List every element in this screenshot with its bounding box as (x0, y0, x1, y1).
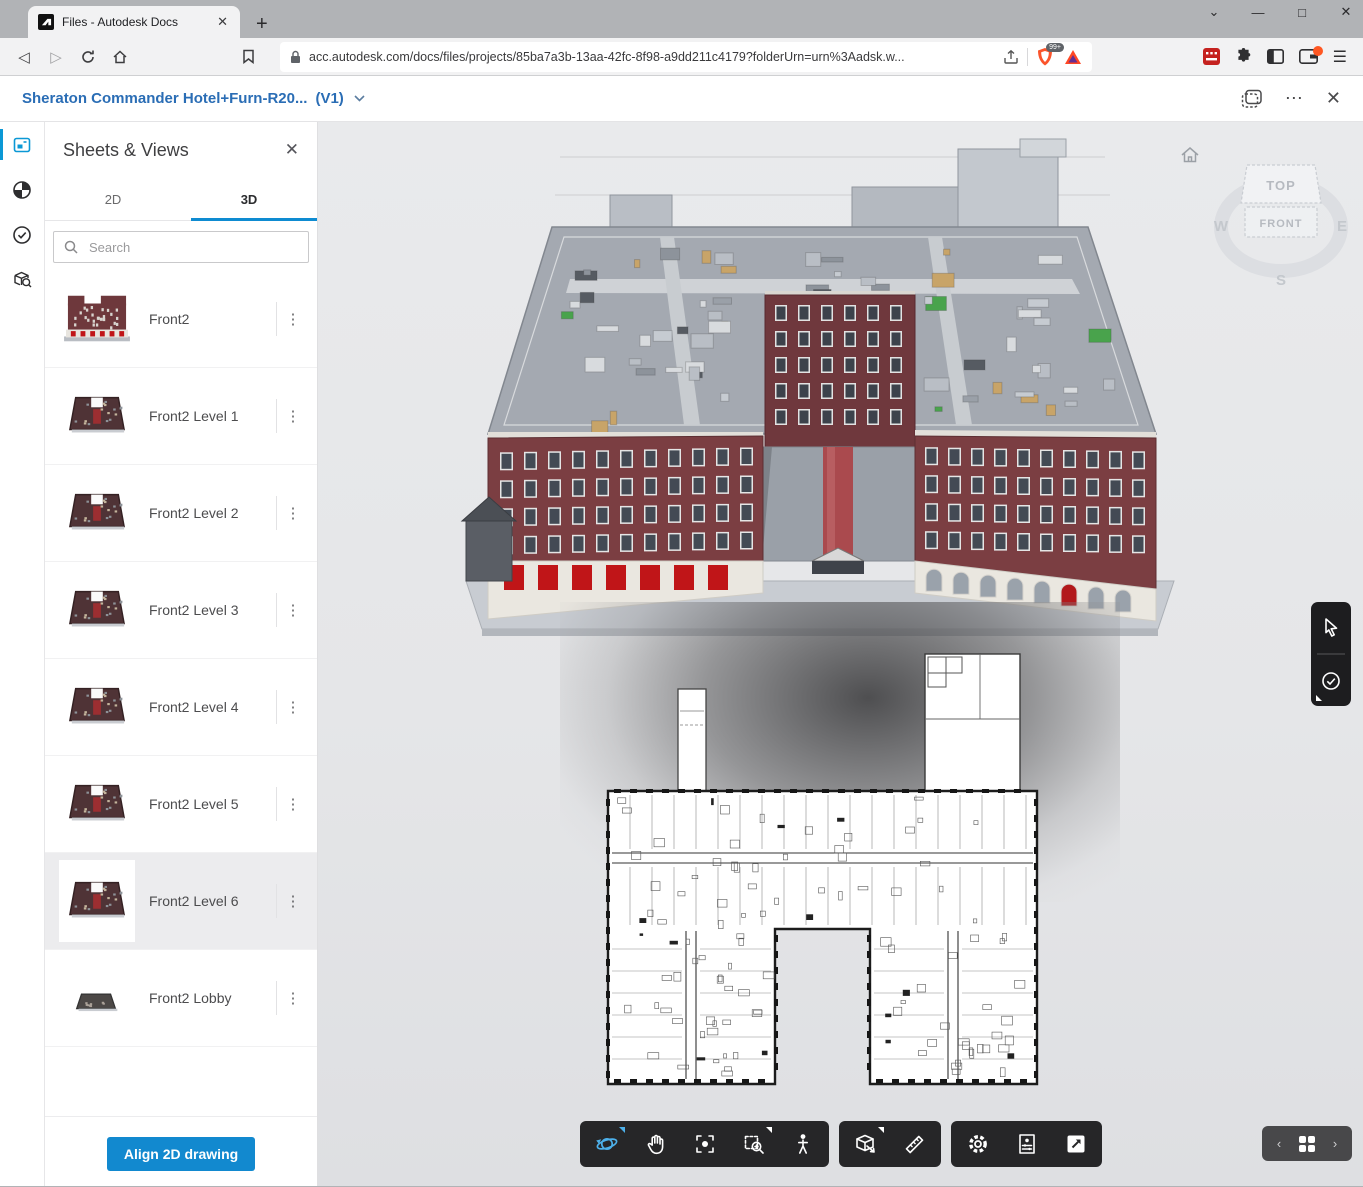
align-2d-drawing-button[interactable]: Align 2D drawing (107, 1137, 255, 1171)
window-controls: ⌄ — □ ✕ (1205, 4, 1355, 20)
panel-tabs: 2D 3D (45, 178, 317, 221)
minimize-icon[interactable]: — (1249, 5, 1267, 20)
menu-hamburger-icon[interactable]: ☰ (1333, 47, 1347, 67)
item-kebab-menu-icon[interactable]: ⋮ (277, 407, 309, 425)
rail-model-search-button[interactable] (0, 257, 44, 302)
measure-tool[interactable] (890, 1121, 939, 1167)
viewcube-south-label[interactable]: S (1276, 272, 1286, 289)
browser-tabstrip: Files - Autodesk Docs ✕ + ⌄ — □ ✕ (0, 0, 1363, 38)
pan-tool[interactable] (631, 1121, 680, 1167)
document-views-tool[interactable] (1002, 1121, 1051, 1167)
sheet-item-label: Front2 Level 2 (149, 505, 276, 521)
floor-plan-2d[interactable] (600, 649, 1040, 1089)
fit-to-view-tool[interactable] (680, 1121, 729, 1167)
shields-badge: 99+ (1046, 43, 1064, 52)
share-icon[interactable] (1003, 49, 1019, 65)
document-views-icon (1016, 1132, 1038, 1156)
extensions-puzzle-icon[interactable] (1235, 48, 1252, 65)
browser-tab[interactable]: Files - Autodesk Docs ✕ (28, 6, 240, 38)
toolbar-group (580, 1121, 829, 1167)
selection-toolbar (1311, 602, 1351, 706)
orbit-icon (594, 1131, 620, 1157)
compare-versions-icon[interactable] (1241, 89, 1263, 109)
bookmark-icon[interactable] (234, 43, 262, 71)
orbit-tool[interactable] (582, 1121, 631, 1167)
version-chevron-down-icon[interactable] (354, 95, 365, 102)
window-close-icon[interactable]: ✕ (1337, 4, 1355, 20)
viewer-toolbar (580, 1121, 1102, 1167)
extension-icons: ☰ (1203, 47, 1353, 67)
autodesk-favicon-icon (38, 14, 54, 30)
issues-check-tool[interactable] (1311, 655, 1351, 706)
item-kebab-menu-icon[interactable]: ⋮ (277, 795, 309, 813)
search-icon (64, 240, 78, 254)
plate-small-thumbnail (59, 957, 135, 1039)
item-kebab-menu-icon[interactable]: ⋮ (277, 698, 309, 716)
settings-tool[interactable] (953, 1121, 1002, 1167)
left-rail (0, 122, 45, 1186)
views-pager: ‹ › (1262, 1126, 1352, 1161)
sheet-list-item[interactable]: Front2 Level 4⋮ (45, 659, 317, 756)
sheet-list-item[interactable]: Front2 Level 1⋮ (45, 368, 317, 465)
measure-icon (903, 1132, 927, 1156)
wallet-icon[interactable] (1299, 49, 1318, 64)
sheet-item-label: Front2 Level 5 (149, 796, 276, 812)
tab-title: Files - Autodesk Docs (62, 15, 207, 29)
section-analysis-icon (853, 1132, 879, 1156)
lock-icon (290, 50, 301, 64)
cursor-icon (1321, 617, 1341, 639)
item-kebab-menu-icon[interactable]: ⋮ (277, 310, 309, 328)
sheet-list-item[interactable]: Front2⋮ (45, 271, 317, 368)
item-kebab-menu-icon[interactable]: ⋮ (277, 989, 309, 1007)
search-input[interactable] (87, 239, 298, 256)
new-tab-button[interactable]: + (256, 14, 268, 34)
viewcube-front-label: FRONT (1260, 218, 1303, 230)
sidebar-toggle-icon[interactable] (1267, 49, 1284, 64)
plate-thumbnail (59, 569, 135, 651)
item-kebab-menu-icon[interactable]: ⋮ (277, 892, 309, 910)
fit-to-view-icon (693, 1132, 717, 1156)
home-view-icon[interactable] (1179, 144, 1201, 166)
sheet-list-item[interactable]: Front2 Level 3⋮ (45, 562, 317, 659)
plate-thumbnail (59, 472, 135, 554)
viewer-close-icon[interactable]: ✕ (1326, 88, 1341, 109)
back-icon[interactable]: ◁ (10, 43, 38, 71)
browser-toolbar: ◁ ▷ acc.autodesk.com/docs/files/projects… (0, 38, 1363, 76)
sheets-views-icon (12, 135, 32, 155)
forward-icon[interactable]: ▷ (42, 43, 70, 71)
pager-prev-icon[interactable]: ‹ (1268, 1129, 1290, 1159)
fullscreen-icon (1065, 1133, 1087, 1155)
sheet-item-label: Front2 Level 3 (149, 602, 276, 618)
elevation-thumbnail (59, 278, 135, 360)
rail-sheets-views-button[interactable] (0, 122, 44, 167)
first-person-icon (792, 1132, 814, 1156)
viewcube-west-label[interactable]: W (1214, 218, 1229, 235)
zoom-window-icon (742, 1132, 766, 1156)
panel-title: Sheets & Views (63, 140, 189, 161)
document-header: Sheraton Commander Hotel+Furn-R20... (V1… (0, 76, 1363, 122)
viewcube-east-label[interactable]: E (1337, 218, 1347, 235)
document-title[interactable]: Sheraton Commander Hotel+Furn-R20... (22, 90, 307, 107)
maximize-icon[interactable]: □ (1293, 5, 1311, 20)
pager-next-icon[interactable]: › (1324, 1129, 1346, 1159)
url-text: acc.autodesk.com/docs/files/projects/85b… (309, 50, 995, 64)
wallet-notification-dot (1313, 46, 1323, 56)
item-kebab-menu-icon[interactable]: ⋮ (277, 504, 309, 522)
panel-close-icon[interactable]: ✕ (285, 140, 299, 160)
cursor-tool[interactable] (1311, 602, 1351, 653)
appearance-icon (12, 180, 32, 200)
fullscreen-tool[interactable] (1051, 1121, 1100, 1167)
more-options-icon[interactable]: ⋯ (1285, 88, 1304, 109)
sheets-views-panel: Sheets & Views ✕ 2D 3D Front2⋮Front2 Lev… (45, 122, 318, 1186)
first-person-tool[interactable] (778, 1121, 827, 1167)
reload-icon[interactable] (74, 43, 102, 71)
section-analysis-tool[interactable] (841, 1121, 890, 1167)
tab-3d[interactable]: 3D (181, 178, 317, 220)
sheet-item-label: Front2 Level 6 (149, 893, 276, 909)
sheet-list-item[interactable]: Front2 Lobby⋮ (45, 950, 317, 1047)
viewcube-top-label: TOP (1266, 178, 1296, 193)
item-kebab-menu-icon[interactable]: ⋮ (277, 601, 309, 619)
views-grid-icon[interactable] (1296, 1129, 1318, 1159)
divider (1027, 48, 1028, 66)
search-box[interactable] (53, 231, 309, 263)
url-bar[interactable]: acc.autodesk.com/docs/files/projects/85b… (280, 42, 1092, 72)
sheet-item-label: Front2 (149, 311, 276, 327)
model-viewport[interactable]: TOP FRONT W E S ‹ › (318, 122, 1363, 1186)
rail-issues-button[interactable] (0, 212, 44, 257)
tab-close-icon[interactable]: ✕ (215, 14, 230, 30)
plate-thumbnail (59, 860, 135, 942)
toolbar-group (839, 1121, 941, 1167)
model-search-icon (12, 269, 33, 290)
zoom-window-tool[interactable] (729, 1121, 778, 1167)
sheet-item-label: Front2 Level 4 (149, 699, 276, 715)
sheet-item-label: Front2 Lobby (149, 990, 276, 1006)
brave-rewards-icon[interactable] (1064, 49, 1082, 65)
issues-check-icon (1320, 670, 1342, 692)
rail-appearance-button[interactable] (0, 167, 44, 212)
issues-icon (12, 225, 32, 245)
plate-thumbnail (59, 375, 135, 457)
window-menu-icon[interactable]: ⌄ (1205, 4, 1223, 20)
document-version: (V1) (315, 90, 343, 107)
viewcube[interactable]: TOP FRONT W E S (1211, 149, 1351, 299)
sheet-list-item[interactable]: Front2 Level 6⋮ (45, 853, 317, 950)
plate-thumbnail (59, 763, 135, 845)
sheet-list-item[interactable]: Front2 Level 5⋮ (45, 756, 317, 853)
extension-red-icon[interactable] (1203, 48, 1220, 65)
building-3d-model[interactable] (460, 129, 1180, 649)
plate-thumbnail (59, 666, 135, 748)
toolbar-group (951, 1121, 1102, 1167)
settings-icon (966, 1132, 990, 1156)
sheet-list-item[interactable]: Front2 Level 2⋮ (45, 465, 317, 562)
pan-icon (645, 1132, 667, 1156)
home-nav-icon[interactable] (106, 43, 134, 71)
brave-shields-icon[interactable]: 99+ (1036, 47, 1056, 67)
sheet-list: Front2⋮Front2 Level 1⋮Front2 Level 2⋮Fro… (45, 271, 317, 1116)
tab-2d[interactable]: 2D (45, 178, 181, 220)
sheet-item-label: Front2 Level 1 (149, 408, 276, 424)
